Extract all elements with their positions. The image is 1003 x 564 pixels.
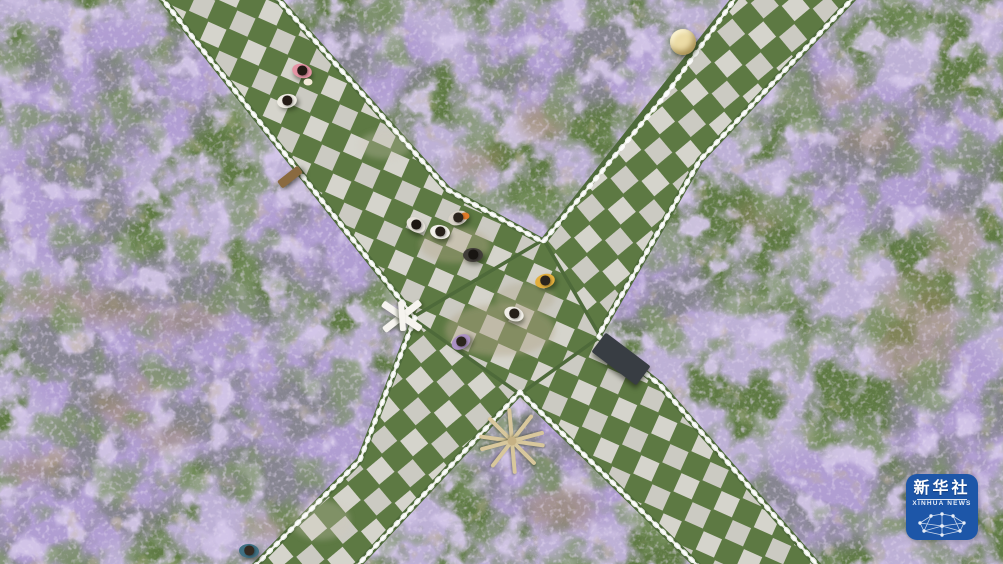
xinhua-news-watermark: 新华社 XINHUA NEWS — [906, 474, 978, 540]
aerial-photo: 新华社 XINHUA NEWS — [0, 0, 1003, 564]
xinhua-en-text: XINHUA NEWS — [912, 501, 971, 508]
aerial-scene-svg — [0, 0, 1003, 564]
xinhua-cn-text: 新华社 — [913, 481, 970, 497]
network-globe-icon — [915, 511, 969, 537]
